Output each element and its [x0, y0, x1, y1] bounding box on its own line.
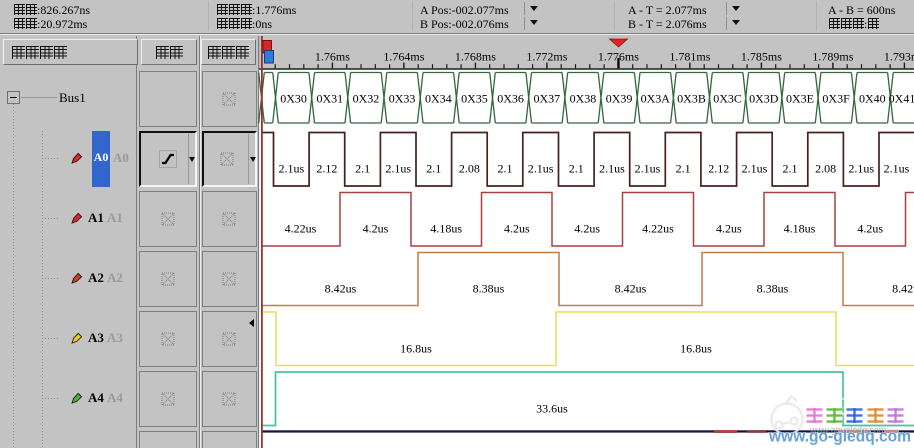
svg-text:2.12: 2.12	[316, 162, 337, 176]
svg-text:2.1: 2.1	[783, 162, 798, 176]
svg-text:8.38us: 8.38us	[473, 282, 505, 296]
svg-text:2.1us: 2.1us	[635, 162, 661, 176]
svg-text:0X41: 0X41	[889, 92, 914, 106]
svg-text:0X38: 0X38	[570, 92, 597, 106]
svg-text:2.1us: 2.1us	[742, 162, 768, 176]
svg-text:1.776ms: 1.776ms	[598, 50, 639, 64]
svg-text:0X35: 0X35	[461, 92, 488, 106]
svg-text:8.42us: 8.42us	[325, 282, 357, 296]
svg-text:0X39: 0X39	[606, 92, 633, 106]
svg-text:0X34: 0X34	[425, 92, 452, 106]
svg-text:2.1us: 2.1us	[599, 162, 625, 176]
svg-text:8.38us: 8.38us	[757, 282, 789, 296]
svg-text:2.1: 2.1	[498, 162, 513, 176]
svg-text:2.1: 2.1	[569, 162, 584, 176]
svg-text:1.76ms: 1.76ms	[315, 50, 350, 64]
svg-text:2.1: 2.1	[355, 162, 370, 176]
svg-text:2.1us: 2.1us	[884, 162, 910, 176]
svg-text:8.42us: 8.42us	[615, 282, 647, 296]
svg-text:4.22us: 4.22us	[285, 222, 317, 236]
svg-text:16.8us: 16.8us	[680, 342, 712, 356]
svg-text:1.785ms: 1.785ms	[741, 50, 782, 64]
svg-text:2.1: 2.1	[676, 162, 691, 176]
svg-text:4.2us: 4.2us	[363, 222, 389, 236]
svg-text:0X3F: 0X3F	[822, 92, 850, 106]
svg-text:0X40: 0X40	[859, 92, 886, 106]
svg-text:4.2us: 4.2us	[857, 222, 883, 236]
svg-text:1.789ms: 1.789ms	[812, 50, 853, 64]
svg-text:0X30: 0X30	[280, 92, 307, 106]
svg-text:4.2us: 4.2us	[504, 222, 530, 236]
svg-text:33.6us: 33.6us	[536, 402, 568, 416]
svg-text:2.1us: 2.1us	[528, 162, 554, 176]
svg-text:1.764ms: 1.764ms	[383, 50, 424, 64]
svg-text:4.2us: 4.2us	[574, 222, 600, 236]
svg-text:2.12: 2.12	[708, 162, 729, 176]
svg-text:0X3D: 0X3D	[749, 92, 779, 106]
svg-text:2.08: 2.08	[459, 162, 480, 176]
svg-text:www.go-gledq.com: www.go-gledq.com	[768, 427, 911, 446]
svg-text:0X3A: 0X3A	[641, 92, 671, 106]
svg-text:0X3E: 0X3E	[786, 92, 814, 106]
svg-text:0X3C: 0X3C	[713, 92, 742, 106]
svg-text:0X36: 0X36	[497, 92, 524, 106]
svg-text:2.1us: 2.1us	[385, 162, 411, 176]
svg-text:0X32: 0X32	[353, 92, 380, 106]
svg-text:0X37: 0X37	[533, 92, 560, 106]
svg-text:2.1us: 2.1us	[278, 162, 304, 176]
svg-text:0X33: 0X33	[389, 92, 416, 106]
svg-text:0X31: 0X31	[316, 92, 343, 106]
svg-text:1.793ms: 1.793ms	[884, 50, 914, 64]
svg-text:2.1us: 2.1us	[848, 162, 874, 176]
svg-text:4.22us: 4.22us	[642, 222, 674, 236]
svg-text:1.772ms: 1.772ms	[526, 50, 567, 64]
svg-text:4.2us: 4.2us	[716, 222, 742, 236]
svg-text:16.8us: 16.8us	[400, 342, 432, 356]
svg-text:2.1: 2.1	[426, 162, 441, 176]
svg-text:2.08: 2.08	[815, 162, 836, 176]
svg-text:0X3B: 0X3B	[677, 92, 706, 106]
svg-text:4.18us: 4.18us	[784, 222, 816, 236]
svg-text:4.18us: 4.18us	[430, 222, 462, 236]
svg-text:8.42us: 8.42us	[892, 282, 914, 296]
svg-text:1.768ms: 1.768ms	[455, 50, 496, 64]
svg-text:1.781ms: 1.781ms	[669, 50, 710, 64]
